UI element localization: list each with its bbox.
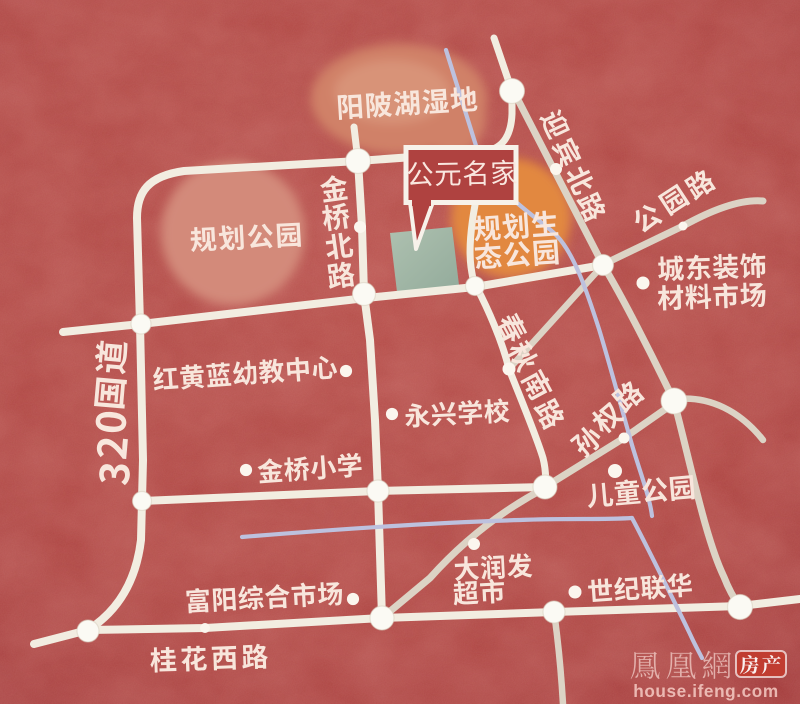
svg-text:house.ifeng.com: house.ifeng.com [633,681,779,701]
